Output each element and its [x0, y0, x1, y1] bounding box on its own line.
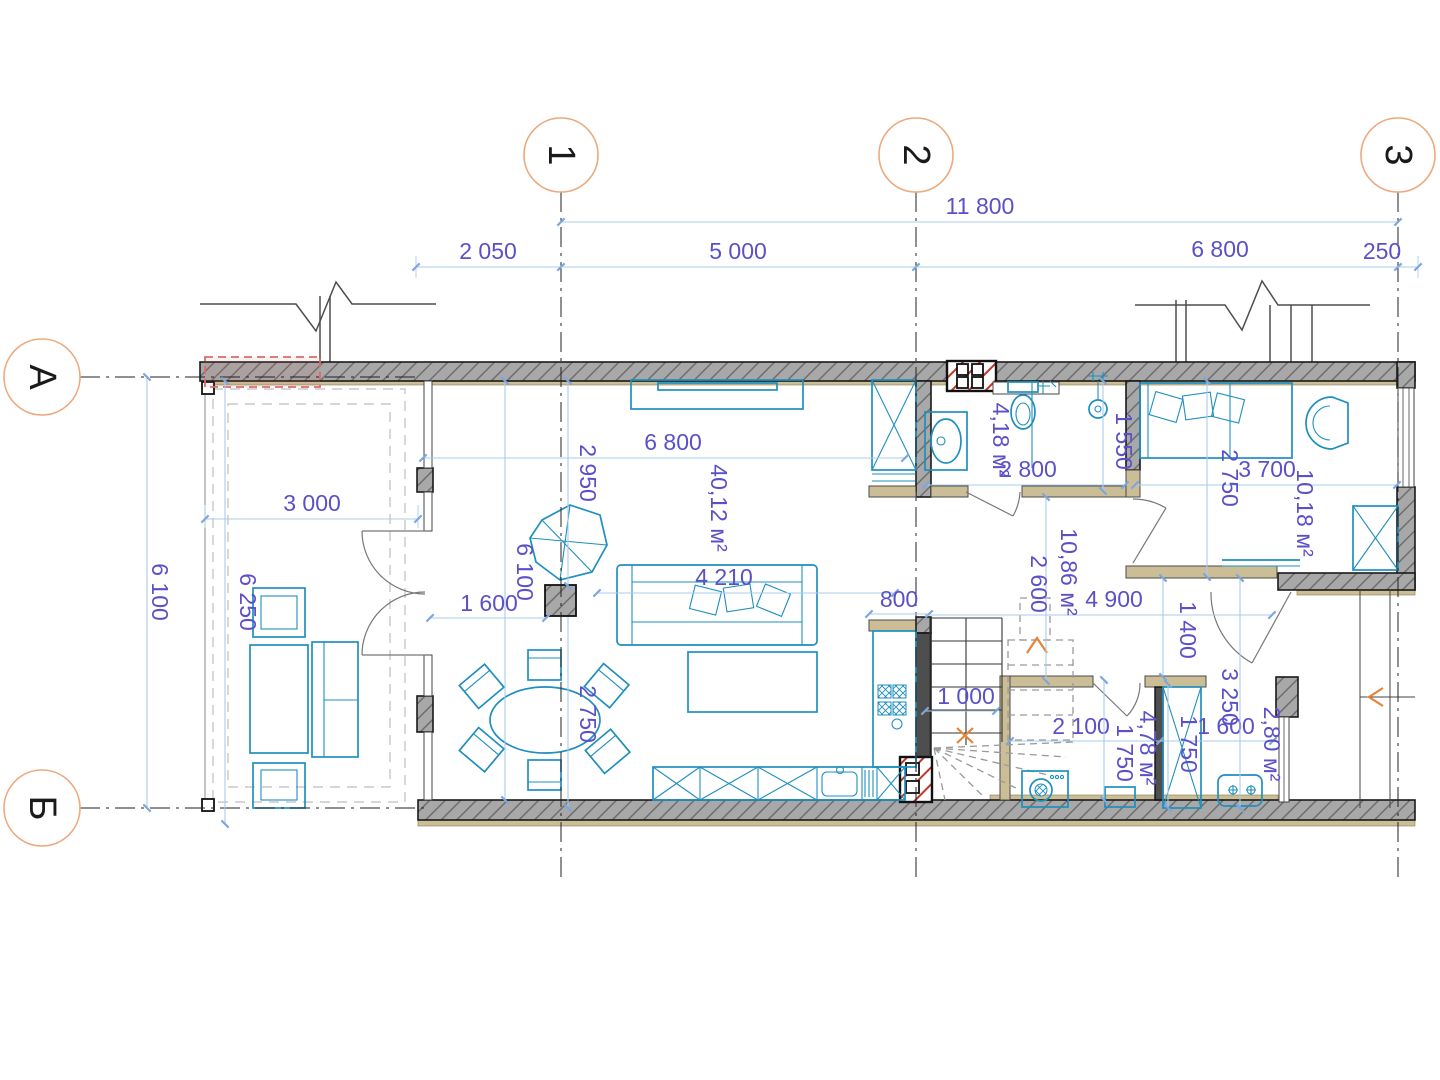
chimney-top	[947, 361, 996, 391]
area-hall: 10,86 м²	[1056, 528, 1082, 616]
axis-label-2: 2	[895, 144, 937, 165]
stair-guard-partition	[869, 620, 916, 631]
wardrobe-north-wall	[1145, 676, 1206, 687]
area-laundry: 4,78 м²	[1135, 711, 1161, 786]
svg-text:6 100: 6 100	[512, 543, 538, 601]
stair-pier	[916, 617, 931, 633]
svg-text:4 900: 4 900	[1085, 586, 1143, 612]
cooktop-burner	[878, 685, 891, 698]
svg-text:2 100: 2 100	[1052, 713, 1110, 739]
west-wall-pier-upper	[417, 468, 433, 492]
west-wall-pier-lower	[417, 696, 433, 732]
svg-text:4 210: 4 210	[695, 564, 753, 590]
svg-text:3 700: 3 700	[1238, 456, 1296, 482]
right-wall-top-stub	[1397, 362, 1415, 388]
west-window-4	[424, 732, 432, 800]
axis-label-B: Б	[21, 796, 63, 821]
laundry-north-wall	[1010, 676, 1093, 687]
cooktop-burner	[893, 685, 906, 698]
bath-south-partition-b	[931, 486, 968, 497]
svg-text:2 050: 2 050	[459, 238, 517, 264]
west-window-1	[424, 381, 432, 468]
cooktop-burner	[893, 702, 906, 715]
bedroom-south-partition	[1126, 566, 1277, 578]
bathroom-west-wall	[916, 381, 931, 497]
svg-text:1 600: 1 600	[460, 590, 518, 616]
area-living: 40,12 м²	[706, 464, 732, 552]
axis-label-3: 3	[1377, 144, 1419, 165]
axis-label-1: 1	[540, 144, 582, 165]
svg-text:1 000: 1 000	[937, 683, 995, 709]
area-entry: 2,80 м²	[1259, 707, 1285, 782]
bath-south-partition-a	[869, 486, 916, 497]
west-window-2	[424, 492, 432, 531]
area-bedroom: 10,18 м²	[1292, 469, 1318, 557]
stair-wall	[916, 633, 931, 757]
axis-label-A: А	[21, 364, 63, 390]
svg-text:1 750: 1 750	[1112, 724, 1138, 782]
svg-text:11 800: 11 800	[946, 193, 1015, 219]
svg-text:6 100: 6 100	[147, 563, 173, 621]
svg-text:2 750: 2 750	[1217, 449, 1243, 507]
bedroom-east-window	[1398, 388, 1414, 487]
svg-text:1 550: 1 550	[1111, 412, 1137, 470]
cooktop-burner	[878, 702, 891, 715]
west-window-3	[424, 655, 432, 696]
svg-text:6 250: 6 250	[235, 573, 261, 631]
svg-text:3 250: 3 250	[1217, 668, 1243, 726]
top-exterior-wall	[200, 362, 1415, 381]
svg-text:2 600: 2 600	[1026, 555, 1052, 613]
wall-markup-highlight	[205, 357, 320, 387]
terrace-column-marker-bottom	[202, 799, 214, 811]
floor-plan-canvas: 1 2 3 А Б 11 800 2 050 5 000 6 800 250	[0, 0, 1440, 1080]
svg-text:800: 800	[880, 586, 918, 612]
bath-south-partition-c	[1022, 486, 1126, 497]
bedroom-south-exterior-wall	[1278, 573, 1415, 590]
svg-text:1 750: 1 750	[1176, 715, 1202, 773]
svg-text:5 000: 5 000	[709, 238, 767, 264]
svg-text:2 750: 2 750	[575, 685, 601, 743]
svg-text:6 800: 6 800	[644, 429, 702, 455]
svg-text:250: 250	[1363, 238, 1401, 264]
svg-text:2 950: 2 950	[575, 444, 601, 502]
svg-text:3 000: 3 000	[283, 490, 341, 516]
svg-text:6 800: 6 800	[1191, 236, 1249, 262]
floor-plan-drawing: 1 2 3 А Б 11 800 2 050 5 000 6 800 250	[0, 0, 1440, 1080]
bedroom-west-partition-cap	[1126, 470, 1140, 497]
area-bath: 4,18 м²	[988, 403, 1014, 478]
svg-text:1 400: 1 400	[1175, 601, 1201, 659]
